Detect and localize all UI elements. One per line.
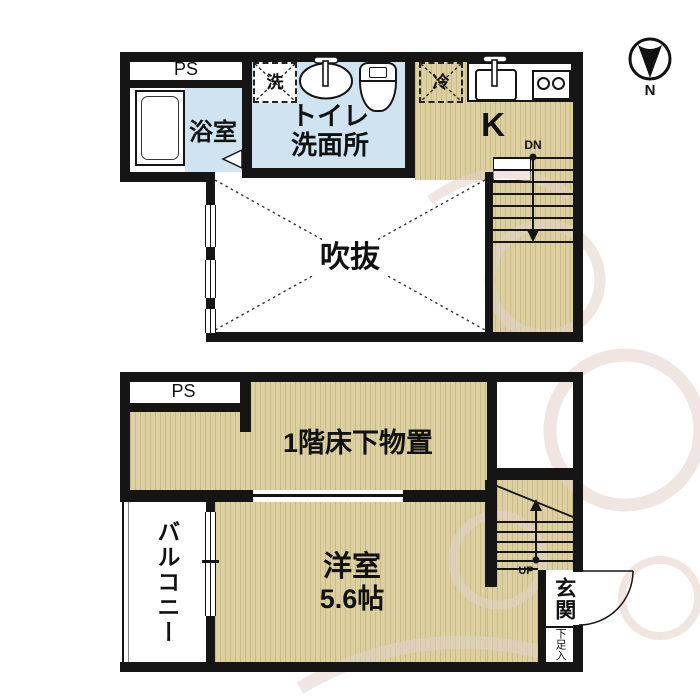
kitchen-counter-icon xyxy=(467,62,573,102)
wall xyxy=(127,403,242,412)
dn-label: DN xyxy=(517,139,549,153)
up-label: UP xyxy=(513,565,539,578)
wall xyxy=(206,616,215,662)
washer-label: 洗 xyxy=(253,62,297,103)
entrance-door-icon xyxy=(579,571,633,625)
window-icon xyxy=(205,205,216,247)
balcony-rail xyxy=(122,502,124,662)
wall xyxy=(403,490,497,502)
open-space-area xyxy=(497,382,573,468)
entrance-label: 玄関 xyxy=(548,572,580,625)
window-tick xyxy=(202,560,219,563)
compass-north-label: N xyxy=(641,83,659,100)
shoe-label: 下足入 xyxy=(550,628,570,661)
wall xyxy=(242,52,252,172)
opening-line xyxy=(253,494,403,497)
fridge-label: 冷 xyxy=(419,62,463,103)
ps-label-lower: PS xyxy=(127,380,240,402)
wall xyxy=(487,468,583,480)
room-label: 洋室 xyxy=(310,551,394,584)
storage-label: 1階床下物置 xyxy=(228,427,488,459)
wall xyxy=(127,80,242,88)
wall xyxy=(120,172,215,182)
wall xyxy=(573,52,583,342)
stove-icon xyxy=(532,70,571,100)
void-label: 吹抜 xyxy=(302,240,398,276)
ps-label-upper: PS xyxy=(130,59,242,80)
wall xyxy=(206,502,215,512)
wall xyxy=(485,480,497,587)
toilet-label-1: トイレ xyxy=(262,102,398,132)
wall xyxy=(207,332,583,342)
wall xyxy=(120,662,583,672)
wall xyxy=(120,490,253,502)
floorplan-canvas: PS 浴室 洗 トイレ 洗面所 冷 K DN 吹抜 PS 1階床下物置 バルコニ… xyxy=(0,0,700,700)
balcony-label: バルコニー xyxy=(150,507,182,657)
bathtub-icon xyxy=(135,90,185,166)
wall xyxy=(405,52,415,178)
window-icon xyxy=(205,309,216,333)
window-icon xyxy=(205,260,216,298)
balcony-rail xyxy=(128,502,129,662)
toilet-label-2: 洗面所 xyxy=(262,131,398,161)
wall xyxy=(120,52,130,182)
wall xyxy=(242,168,415,178)
compass-icon xyxy=(630,39,670,79)
wall xyxy=(487,372,497,468)
wall xyxy=(485,172,493,332)
window-icon xyxy=(205,512,216,616)
bath-label: 浴室 xyxy=(184,119,242,147)
kitchen-label: K xyxy=(470,106,516,144)
wall xyxy=(240,372,251,432)
room-size-label: 5.6帖 xyxy=(308,584,396,615)
kitchen-sink-icon xyxy=(475,69,517,101)
wall xyxy=(538,570,546,662)
